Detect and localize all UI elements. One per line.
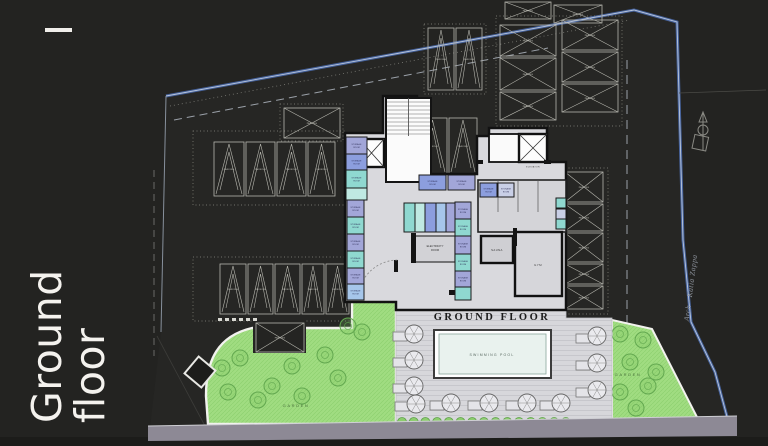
storage-room: STORAGEROOM [346,170,367,188]
tiny-label: STORAGE [501,188,512,191]
tiny-label: ROOM [353,147,360,149]
parking-stall: PARKING [505,2,551,19]
tiny-label: PARKING [573,13,584,16]
tree-icon [294,388,310,404]
storage-room [556,198,566,208]
tiny-label: PARKING [579,273,590,276]
tree-icon [232,350,248,366]
storage-room [346,188,367,200]
tiny-label: PARKING [523,105,534,108]
tiny-label: STORAGE [351,257,362,260]
tiny-label: STORAGE [458,243,469,246]
page-title: Ground floor [26,193,130,423]
tree-icon [635,332,651,348]
tiny-label: ROOM [485,192,492,194]
tiny-label: STORAGE [351,290,362,293]
storage-room: STORAGEROOM [347,234,364,251]
tiny-label: STORAGE [351,223,362,226]
tree-icon [640,378,656,394]
tiny-label: PARKING [332,288,343,291]
tiny-label: STORAGE [458,208,469,211]
tiny-label: ROOM [503,192,510,194]
storage-room: STORAGEROOM [347,268,364,284]
storage-room: STORAGEROOM [448,175,475,190]
tiny-label: PARKING [436,58,447,61]
tiny-label: ROOM [352,244,359,246]
title-line2: floor [66,328,114,423]
accent-dash [45,28,72,32]
storage-room: STORAGEROOM [455,219,471,236]
tiny-label: PARKING [224,168,235,171]
electricity-label-1: ELECTRICITY [427,244,444,248]
tiny-label: STORAGE [352,143,363,146]
tiny-label: STORAGE [458,277,469,280]
tree-icon [220,384,236,400]
storage-room [446,203,455,232]
gym-label: GYM [534,263,542,267]
tiny-label: PARKING [579,297,590,300]
tiny-label: ROOM [429,184,436,186]
tiny-label: ROOM [352,261,359,263]
tiny-label: STORAGE [458,225,469,228]
tree-icon [264,378,280,394]
tree-icon [612,384,628,400]
garden-left-label: GARDEN [283,403,310,408]
tiny-label: ROOM [353,164,360,166]
tiny-label: PARKING [585,97,596,100]
tiny-label: PARKING [308,288,319,291]
tiny-label: ROOM [458,184,465,186]
tiny-label: ROOM [460,212,467,214]
tiny-label: ROOM [352,210,359,212]
tiny-label: STORAGE [351,206,362,209]
storage-room: STORAGEROOM [419,175,446,190]
tree-icon [330,370,346,386]
tiny-label: ROOM [352,227,359,229]
tiny-label: PARKING [286,168,297,171]
tree-icon [628,400,644,416]
plan-title: GROUND FLOOR [434,312,551,323]
tree-icon [214,360,230,376]
tiny-label: PARKING [523,10,534,13]
tiny-label: PARKING [307,122,318,125]
tiny-label: ROOM [460,264,467,266]
staircase [386,98,431,182]
tiny-label: PARKING [579,217,590,220]
tiny-label: PARKING [282,288,293,291]
electricity-room: ELECTRICITY ROOM [415,236,455,262]
tiny-label: STORAGE [352,177,363,180]
storage-room [455,287,471,300]
tiny-label: STORAGE [352,160,363,163]
storage-room [556,209,566,219]
tiny-label: PARKING [228,288,239,291]
tiny-label: PARKING [316,168,327,171]
tiny-label: STORAGE [457,180,468,183]
pool-label: SWIMMING POOL [470,353,515,357]
tiny-label: PARKING [458,145,469,148]
tiny-label: PARKING [275,337,286,340]
tree-icon [612,326,628,342]
storage-room: STORAGEROOM [498,183,514,197]
tiny-label: STORAGE [458,260,469,263]
storage-room [404,203,415,232]
storage-room: STORAGEROOM [455,236,471,254]
tiny-label: ROOM [352,294,359,296]
storage-room: STORAGEROOM [455,254,471,271]
storage-room: STORAGEROOM [346,154,367,170]
tiny-label: PARKING [579,247,590,250]
sauna-label: SAUNA [491,248,503,252]
sauna-room: SAUNA [481,236,513,263]
storage-room [436,203,446,232]
storage-room [556,219,566,229]
title-line1: Ground [23,269,71,423]
tiny-label: PARKING [255,288,266,291]
storage-room: STORAGEROOM [347,284,364,300]
storage-room [415,203,425,232]
tree-icon [622,354,638,370]
slide: Ground floor [0,0,768,446]
tree-icon [340,318,356,334]
tiny-label: PARKING [464,58,475,61]
swimming-pool: SWIMMING POOL [434,330,551,378]
tiny-label: PARKING [585,34,596,37]
storage-room: STORAGEROOM [347,217,364,234]
garden-right-label: GARDEN [615,372,642,377]
tiny-label: ROOM [353,181,360,183]
storage-room: STORAGEROOM [455,202,471,219]
storage-room: STORAGEROOM [347,251,364,268]
electricity-label-2: ROOM [431,248,439,252]
tiny-label: STORAGE [351,274,362,277]
tiny-label: PARKING [579,186,590,189]
storage-room: STORAGEROOM [455,271,471,287]
north-compass-icon [692,112,709,151]
tiny-label: ROOM [352,278,359,280]
elevator-label: ELEVATOR [526,166,540,169]
tiny-label: PARKING [585,66,596,69]
tiny-label: ROOM [460,247,467,249]
storage-room: STORAGEROOM [346,137,367,154]
tiny-label: PARKING [523,73,534,76]
tiny-label: PARKING [255,168,266,171]
tree-icon [317,347,333,363]
tree-icon [284,358,300,374]
tiny-label: STORAGE [351,240,362,243]
tiny-label: ROOM [460,281,467,283]
tiny-label: STORAGE [484,188,495,191]
storage-room: STORAGEROOM [480,183,497,197]
tiny-label: ROOM [460,229,467,231]
tree-icon [250,392,266,408]
tree-icon [648,364,664,380]
storage-room: STORAGEROOM [347,200,364,217]
tiny-label: STORAGE [428,180,439,183]
storage-room [425,203,436,232]
gym-room: GYM [515,232,562,296]
tiny-label: PARKING [523,40,534,43]
